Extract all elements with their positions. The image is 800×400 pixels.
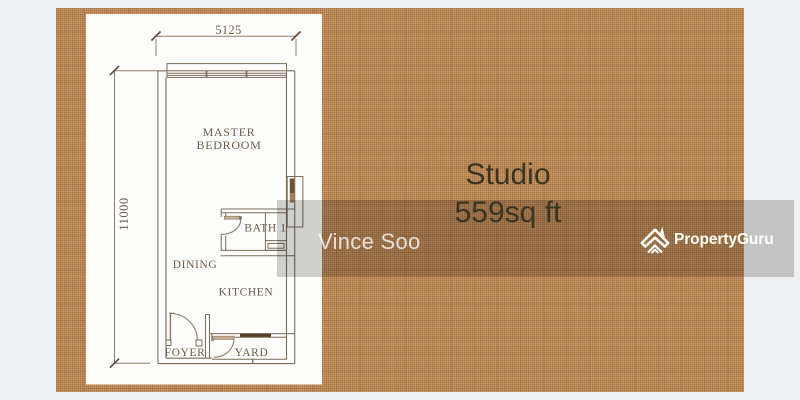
svg-text:FOYER: FOYER <box>165 347 206 359</box>
svg-text:YARD: YARD <box>235 347 269 359</box>
svg-text:11000: 11000 <box>117 197 131 230</box>
svg-text:BEDROOM: BEDROOM <box>197 138 262 152</box>
svg-text:KITCHEN: KITCHEN <box>219 287 274 299</box>
svg-text:5125: 5125 <box>215 23 241 37</box>
svg-text:DINING: DINING <box>173 259 217 271</box>
svg-text:MASTER: MASTER <box>203 125 256 139</box>
